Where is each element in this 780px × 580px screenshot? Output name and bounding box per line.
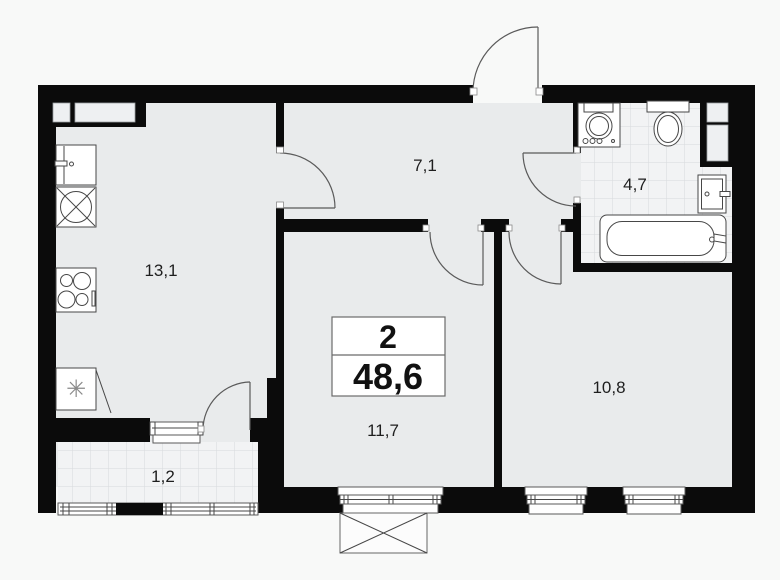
wall-step [267,378,276,422]
bathroom-shaft-niche-top [707,103,728,122]
wall-left [38,85,56,513]
rooms-count-value: 2 [379,319,397,355]
balcony-area-label: 1,2 [151,467,175,486]
duct-niche-small [53,103,70,122]
wash-basin-icon [698,175,730,213]
total-area-value: 48,6 [353,356,423,397]
bathroom-area-label: 4,7 [623,175,647,194]
washing-machine-icon [578,103,620,147]
kitchen-sink-icon [56,187,96,227]
freezer-symbol: ✳ [66,375,86,403]
wall-right [732,85,755,513]
stove-icon [56,268,96,312]
bedroom-window-left [525,487,587,514]
balcony-glazing [58,503,258,515]
wall-hall-bottom-left [276,219,428,232]
wall-kitchen-hall-upper [276,103,284,153]
wall-kitchen-hall-stub [276,208,284,219]
bathtub-icon [600,215,726,262]
wall-bathroom-bottom [573,263,732,272]
wall-hall-bottom-mid [481,219,509,232]
refrigerator-icon [55,145,96,185]
kitchen-window [150,422,203,443]
bedroom-window-right [623,487,685,514]
wall-kitchen-bottom [56,418,150,442]
bathroom-shaft-niche-bottom [707,125,728,161]
hallway-area-label: 7,1 [413,156,437,175]
wall-room-bedroom-divider [494,232,502,487]
wall-top-left [146,85,473,103]
floor-plan-drawing: ✳ [0,0,780,580]
summary-box: 2 48,6 [332,317,445,397]
bedroom-area-label: 10,8 [592,378,625,397]
floor-plan-page: ✳ [0,0,780,580]
wall-bathroom-left-lower [573,203,581,272]
room-area-label: 11,7 [367,421,399,440]
french-balcony [340,513,427,553]
duct-niche-wide [75,103,135,122]
wall-balcony-right [258,442,284,513]
kitchen-area-label: 13,1 [144,261,177,280]
room-window [338,487,443,513]
